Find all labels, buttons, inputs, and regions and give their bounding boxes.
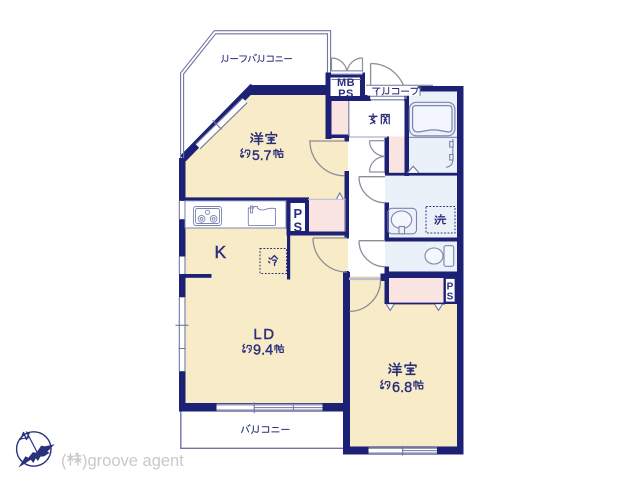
svg-text:9.4: 9.4 bbox=[253, 343, 273, 359]
svg-text:S: S bbox=[293, 220, 302, 235]
svg-text:LD: LD bbox=[253, 326, 275, 343]
svg-text:PS: PS bbox=[338, 88, 354, 100]
svg-text:5.7: 5.7 bbox=[252, 147, 272, 163]
svg-text:S: S bbox=[447, 292, 454, 303]
svg-text:)groove agent: )groove agent bbox=[82, 452, 184, 470]
svg-text:6.8: 6.8 bbox=[392, 380, 412, 396]
svg-text:K: K bbox=[215, 242, 227, 262]
svg-text:(: ( bbox=[61, 452, 67, 470]
